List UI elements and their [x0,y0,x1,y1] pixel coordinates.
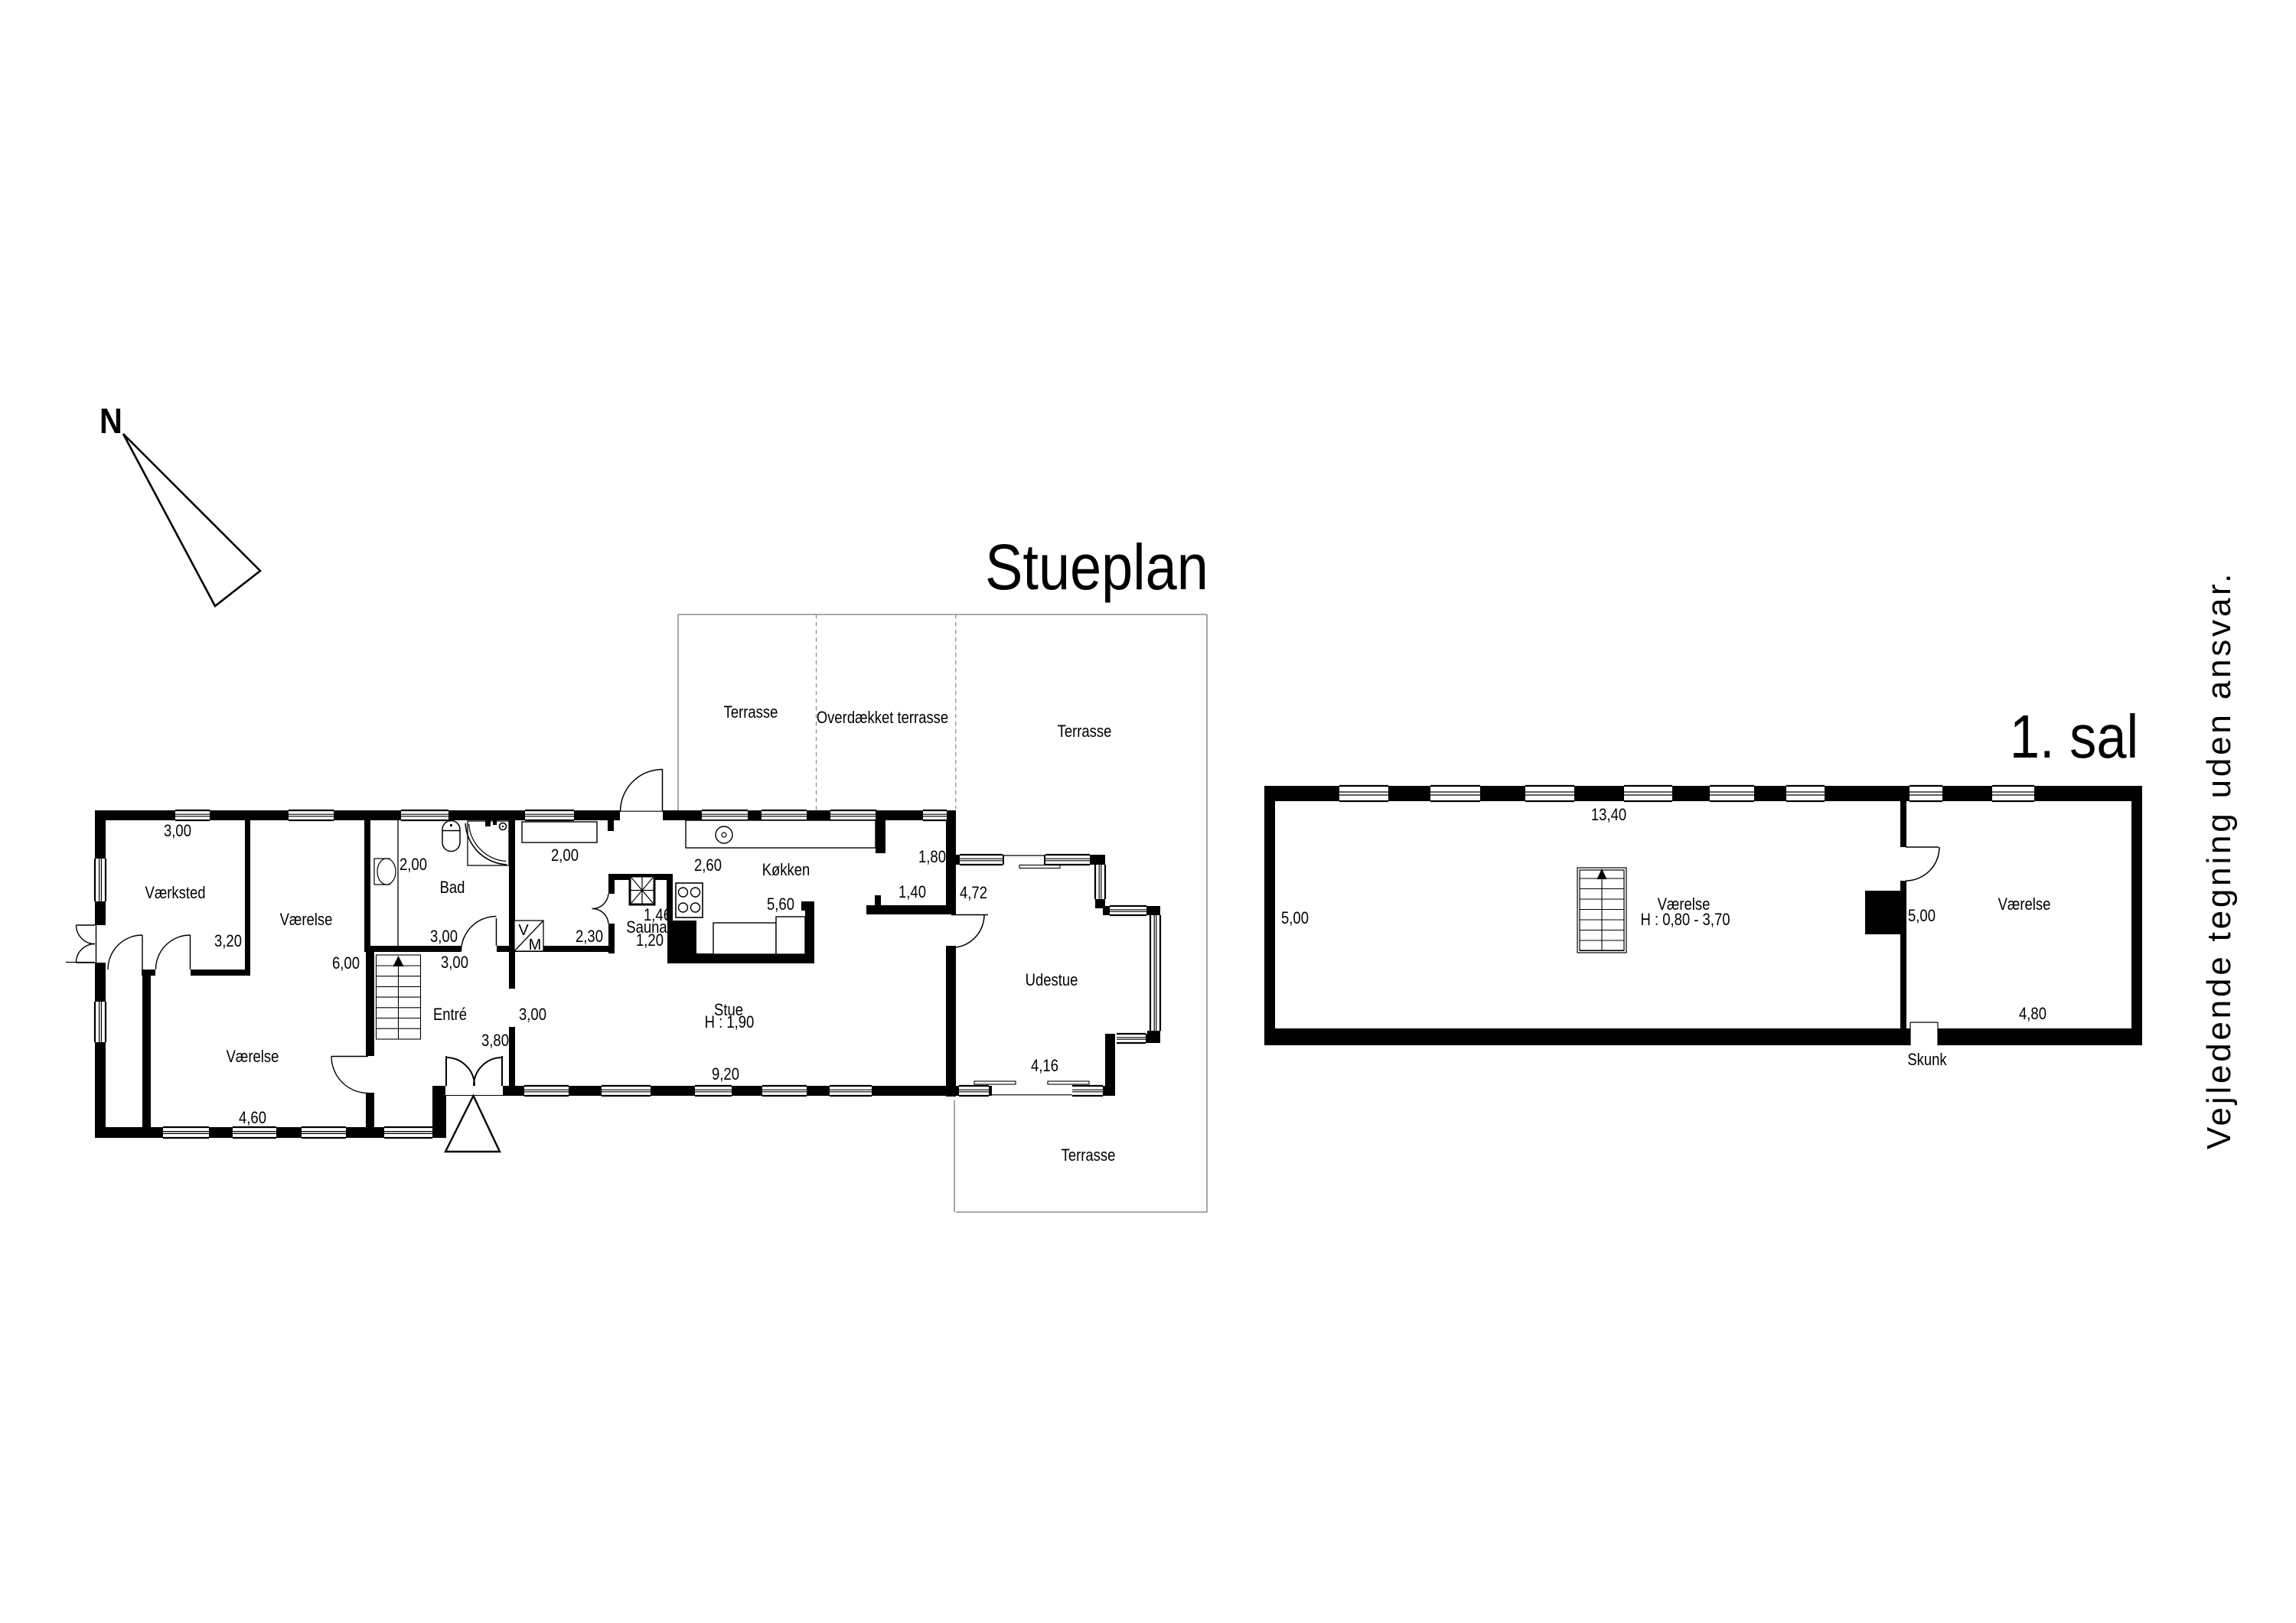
svg-text:2,00: 2,00 [400,856,427,875]
svg-text:1. sal: 1. sal [2010,702,2138,771]
svg-text:1,20: 1,20 [636,932,664,950]
svg-text:3,80: 3,80 [481,1032,509,1051]
svg-text:6,00: 6,00 [332,955,360,973]
svg-text:Vejledende tegning uden ansvar: Vejledende tegning uden ansvar. [2200,571,2238,1149]
svg-text:Overdækket terrasse: Overdækket terrasse [817,709,948,728]
svg-text:1,40: 1,40 [899,884,926,902]
svg-text:9,20: 9,20 [712,1066,739,1084]
svg-text:Værelse: Værelse [1998,896,2051,914]
svg-text:2,60: 2,60 [694,857,722,875]
svg-text:Stueplan: Stueplan [985,531,1208,603]
svg-text:4,60: 4,60 [239,1110,266,1128]
svg-text:Køkken: Køkken [762,862,810,880]
svg-text:1,80: 1,80 [918,849,946,867]
svg-text:2,30: 2,30 [576,928,603,947]
svg-text:Værelse: Værelse [227,1048,279,1067]
svg-text:3,20: 3,20 [214,933,242,951]
svg-text:N: N [99,402,122,442]
svg-text:5,00: 5,00 [1908,908,1936,926]
svg-text:5,60: 5,60 [767,896,794,914]
svg-text:4,80: 4,80 [2019,1005,2047,1024]
svg-text:Terrasse: Terrasse [1058,723,1112,741]
svg-text:M: M [529,937,542,953]
svg-text:Værksted: Værksted [145,885,205,903]
svg-text:V: V [518,922,529,939]
svg-text:H : 1,90: H : 1,90 [705,1014,755,1032]
svg-text:Udestue: Udestue [1026,972,1078,990]
svg-text:Terrasse: Terrasse [1062,1147,1116,1165]
svg-text:4,72: 4,72 [960,885,987,903]
svg-text:5,00: 5,00 [1281,910,1309,928]
svg-text:Entré: Entré [433,1006,467,1025]
svg-text:Bad: Bad [440,879,465,898]
svg-text:3,00: 3,00 [164,823,191,841]
svg-text:Skunk: Skunk [1907,1051,1947,1070]
svg-text:3,00: 3,00 [430,928,458,947]
svg-text:3,00: 3,00 [441,954,468,973]
svg-text:Terrasse: Terrasse [724,704,778,722]
svg-text:H : 0,80 - 3,70: H : 0,80 - 3,70 [1641,911,1730,930]
svg-text:4,16: 4,16 [1031,1058,1058,1076]
svg-text:3,00: 3,00 [519,1006,546,1025]
svg-text:2,00: 2,00 [551,847,579,865]
svg-text:13,40: 13,40 [1591,807,1626,825]
svg-text:Værelse: Værelse [280,911,333,930]
